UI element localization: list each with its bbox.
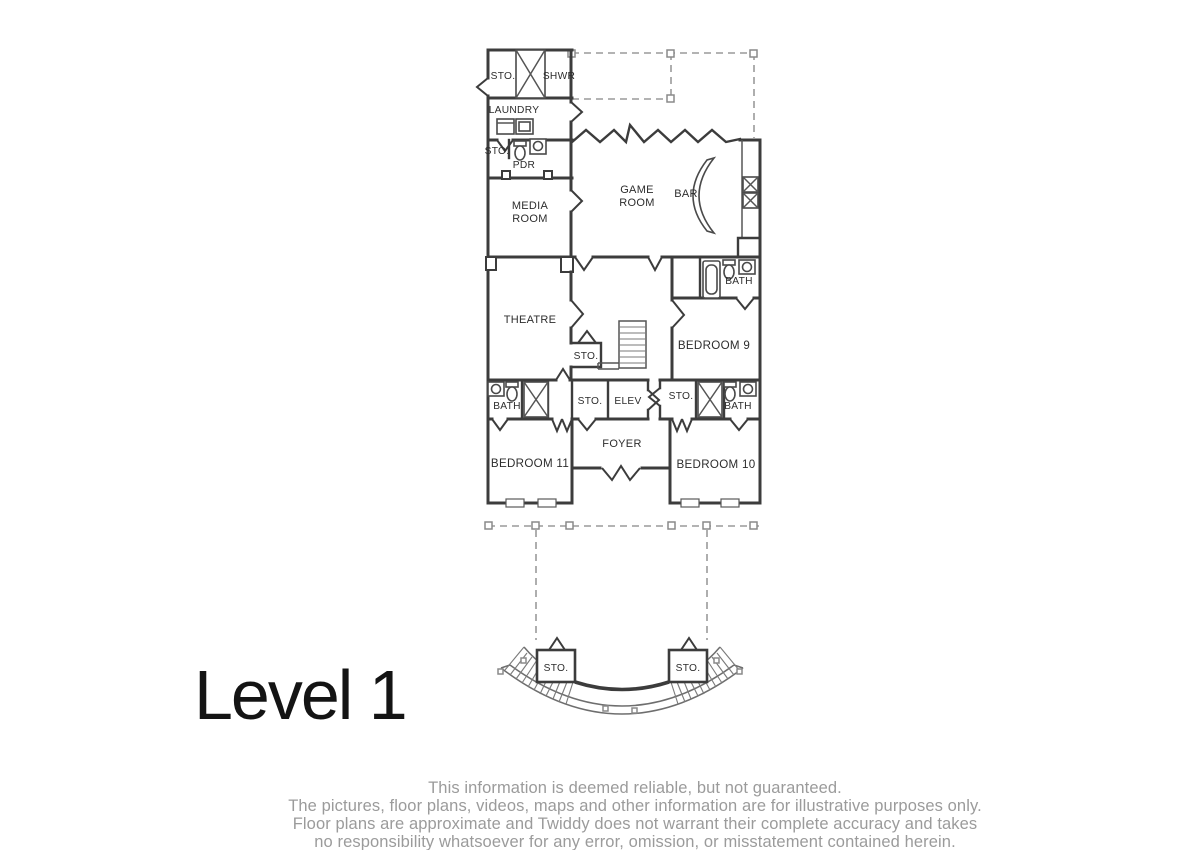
floorplan-drawing: STO. SHWR LAUNDRY STO. PDR MEDIA ROOM GA… bbox=[0, 0, 1200, 850]
disclaimer-line-4: no responsibility whatsoever for any err… bbox=[70, 833, 1200, 850]
room-label-bedroom9: BEDROOM 9 bbox=[678, 339, 750, 352]
room-label-storage-right: STO. bbox=[669, 391, 694, 402]
room-label-bath-right: BATH bbox=[724, 401, 752, 412]
room-label-bedroom11: BEDROOM 11 bbox=[491, 457, 569, 470]
room-label-porch-sto-right: STO. bbox=[676, 663, 701, 674]
room-label-theatre: THEATRE bbox=[504, 314, 557, 326]
washer-dryer-fixture bbox=[497, 119, 533, 134]
room-label-storage-top: STO. bbox=[491, 71, 516, 82]
powder-toilet-fixture bbox=[514, 139, 546, 160]
lower-deck-outline bbox=[485, 522, 760, 640]
foyer-walls bbox=[572, 419, 670, 503]
disclaimer-line-3: Floor plans are approximate and Twiddy d… bbox=[70, 815, 1200, 833]
room-label-bar: BAR bbox=[674, 188, 698, 200]
room-label-media-1: MEDIA bbox=[512, 200, 549, 212]
room-label-media-2: ROOM bbox=[512, 213, 547, 225]
room-label-bath-left: BATH bbox=[493, 401, 521, 412]
disclaimer-line-2: The pictures, floor plans, videos, maps … bbox=[70, 797, 1200, 815]
disclaimer-line-1: This information is deemed reliable, but… bbox=[70, 779, 1200, 797]
porch-storage-left bbox=[537, 638, 575, 682]
room-label-storage-mid: STO. bbox=[578, 396, 603, 407]
porch-storage-right bbox=[669, 638, 707, 682]
level-title: Level 1 bbox=[194, 660, 406, 730]
room-label-shower: SHWR bbox=[543, 71, 575, 82]
stair-hall-walls bbox=[571, 272, 601, 380]
right-bath-fixtures bbox=[724, 382, 756, 401]
room-label-foyer: FOYER bbox=[602, 438, 641, 450]
room-label-bath-b9: BATH bbox=[725, 276, 753, 287]
room-label-game-1: GAME bbox=[620, 184, 654, 196]
shower-stall bbox=[516, 50, 545, 98]
disclaimer-text: This information is deemed reliable, but… bbox=[70, 779, 1200, 850]
bar-area bbox=[693, 140, 760, 257]
room-label-game-2: ROOM bbox=[619, 197, 654, 209]
left-bath-fixtures bbox=[488, 382, 518, 401]
staircase bbox=[598, 321, 646, 369]
room-labels: STO. SHWR LAUNDRY STO. PDR MEDIA ROOM GA… bbox=[485, 71, 756, 674]
floor-plan-page: STO. SHWR LAUNDRY STO. PDR MEDIA ROOM GA… bbox=[0, 0, 1200, 850]
entry-door bbox=[602, 466, 640, 480]
room-label-laundry: LAUNDRY bbox=[489, 105, 540, 116]
upper-deck-outline bbox=[568, 50, 757, 138]
room-label-storage-pdr: STO. bbox=[485, 146, 510, 157]
game-room-window-wall bbox=[572, 125, 740, 142]
room-label-porch-sto-left: STO. bbox=[544, 663, 569, 674]
room-label-storage-stair: STO. bbox=[574, 351, 599, 362]
front-porch bbox=[498, 638, 743, 714]
room-label-elevator: ELEV bbox=[614, 396, 641, 407]
room-label-bedroom10: BEDROOM 10 bbox=[676, 458, 755, 471]
room-label-powder: PDR bbox=[513, 160, 535, 171]
